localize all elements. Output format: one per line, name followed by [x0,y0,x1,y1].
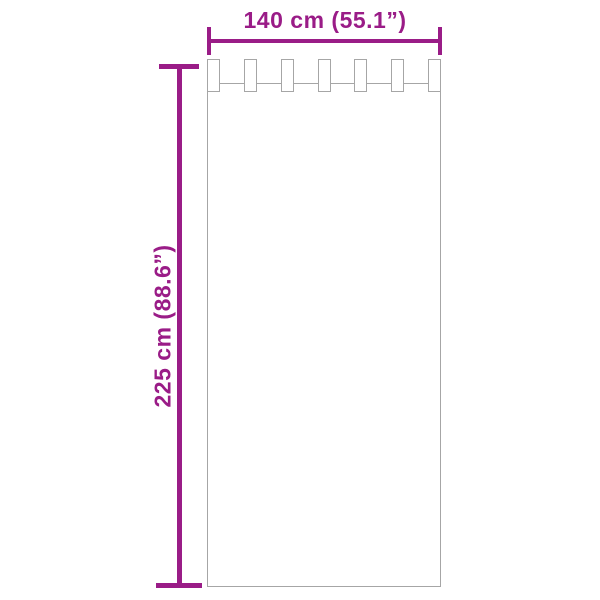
width-dimension-cap-right [438,27,442,55]
curtain-tab [207,59,220,92]
width-dimension-cap-left [207,27,211,55]
curtain-tab [354,59,367,92]
curtain-tab [281,59,294,92]
height-dimension-cap-top [159,64,199,69]
curtain-tab [391,59,404,92]
width-dimension-label: 140 cm (55.1”) [244,7,407,34]
height-dimension-line [177,65,182,588]
product-dimension-diagram: 140 cm (55.1”) 225 cm (88.6”) [0,0,600,600]
height-dimension-cap-bottom [156,583,202,588]
height-dimension-label: 225 cm (88.6”) [150,245,177,408]
curtain-outline [207,83,441,587]
curtain-tab [244,59,257,92]
curtain-tab [428,59,441,92]
width-dimension-line [209,39,441,43]
curtain-tab [318,59,331,92]
